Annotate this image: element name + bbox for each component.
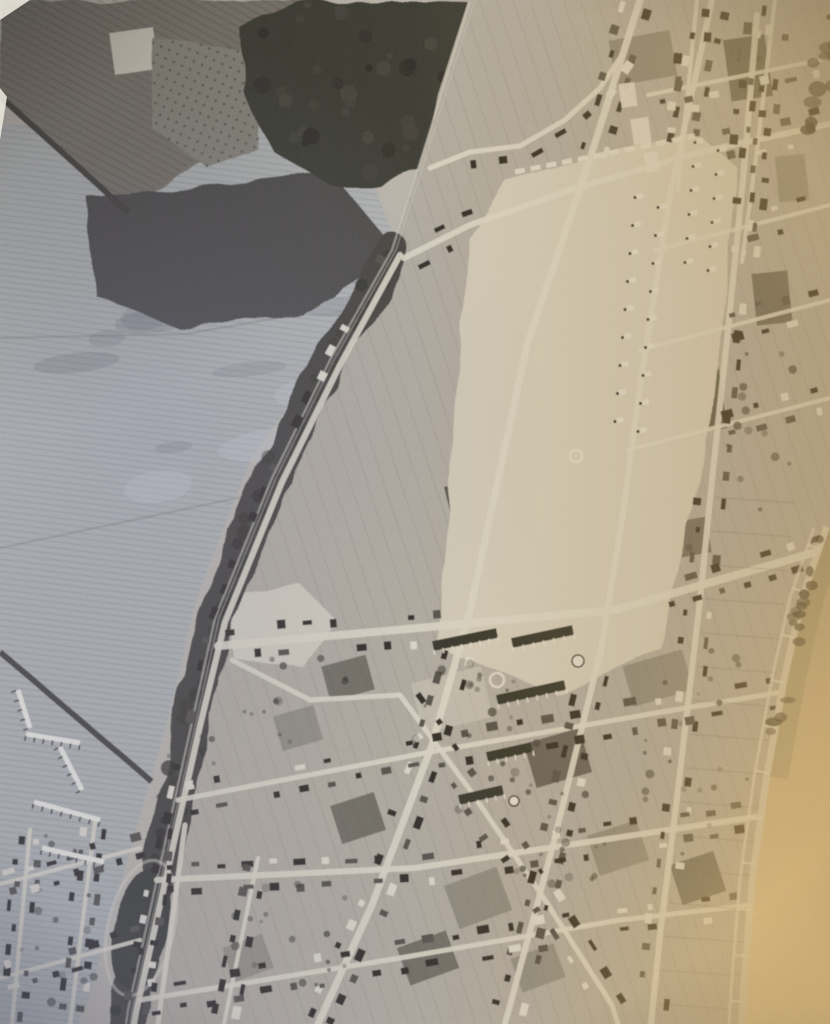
photo-tone-overlays [0, 0, 830, 1024]
aerial-photograph: Vintage black-and-white aerial photograp… [0, 0, 830, 1024]
film-grain-overlay [0, 0, 830, 1024]
aerial-photo-canvas: Vintage black-and-white aerial photograp… [0, 0, 830, 1024]
